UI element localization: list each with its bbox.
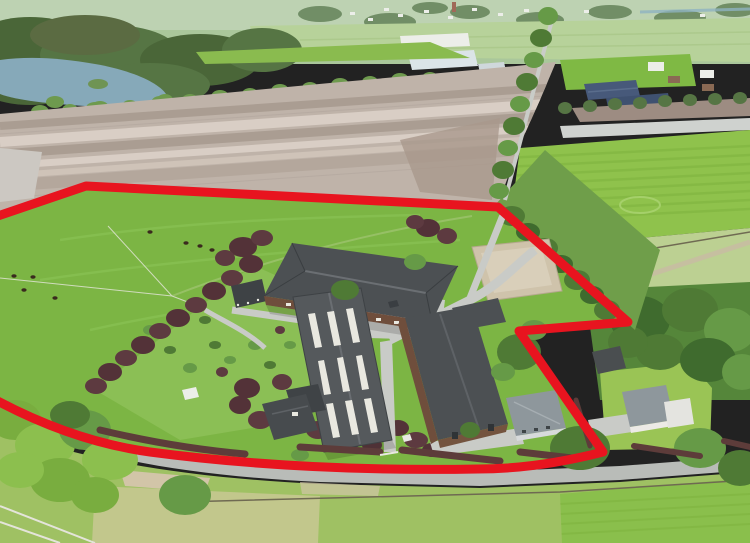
aerial-photo — [0, 0, 750, 543]
roadside-tree — [159, 475, 211, 515]
church-tower — [452, 2, 456, 12]
